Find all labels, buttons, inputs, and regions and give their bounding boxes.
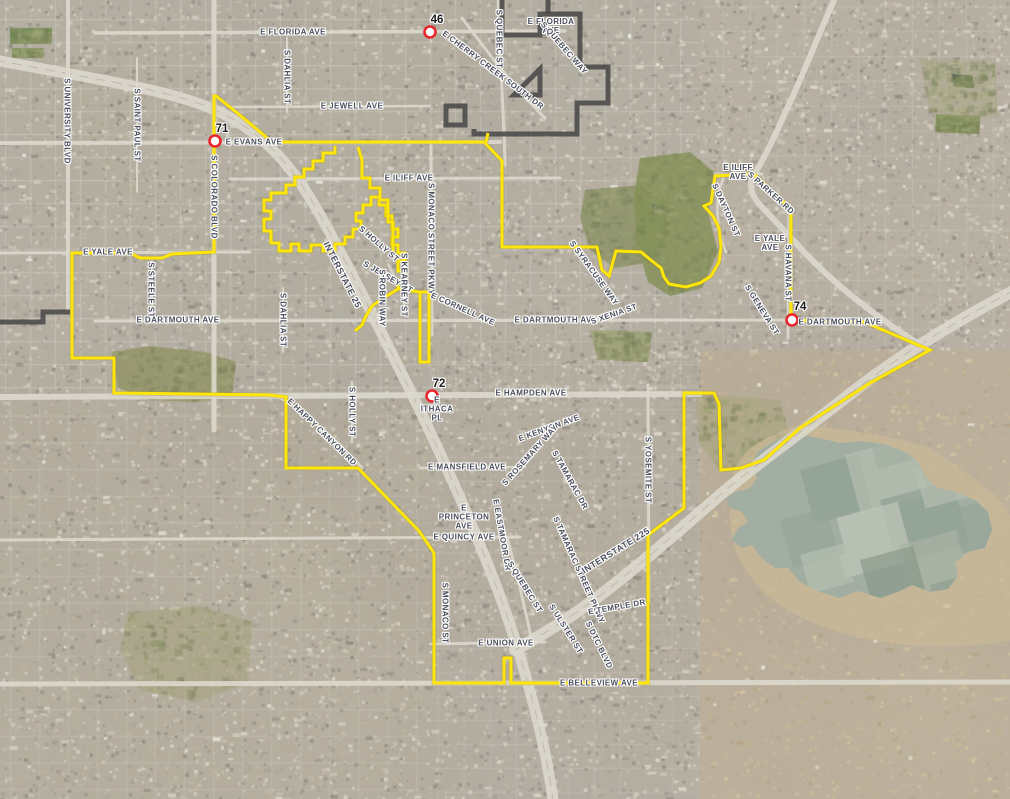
road bbox=[230, 178, 560, 179]
road bbox=[230, 106, 430, 107]
road bbox=[751, 0, 928, 350]
poi-marker-72[interactable] bbox=[427, 391, 438, 402]
road bbox=[0, 60, 553, 799]
poi-marker-circle[interactable] bbox=[210, 136, 221, 147]
poi-marker-circle[interactable] bbox=[425, 27, 436, 38]
poi-marker-46[interactable] bbox=[425, 27, 436, 38]
county-boundary-line bbox=[514, 69, 540, 95]
poi-marker-71[interactable] bbox=[210, 136, 221, 147]
city-boundary-line bbox=[486, 133, 488, 142]
poi-marker-circle[interactable] bbox=[427, 391, 438, 402]
road bbox=[0, 537, 520, 540]
road bbox=[430, 642, 545, 644]
road bbox=[280, 398, 362, 468]
county-boundary-line bbox=[0, 312, 70, 322]
road bbox=[95, 31, 565, 33]
highway-median bbox=[0, 60, 553, 799]
map-overlay bbox=[0, 0, 1010, 799]
county-boundary-line bbox=[446, 106, 465, 125]
poi-marker-circle[interactable] bbox=[787, 315, 798, 326]
dark-boundary-layer bbox=[0, 0, 608, 322]
poi-marker-74[interactable] bbox=[787, 315, 798, 326]
road bbox=[0, 394, 700, 397]
city-boundary-line bbox=[358, 147, 393, 253]
road bbox=[420, 467, 525, 468]
map-canvas[interactable]: E FLORIDA AVEE FLORIDAAVEE CHERRY CREEK … bbox=[0, 0, 1010, 799]
